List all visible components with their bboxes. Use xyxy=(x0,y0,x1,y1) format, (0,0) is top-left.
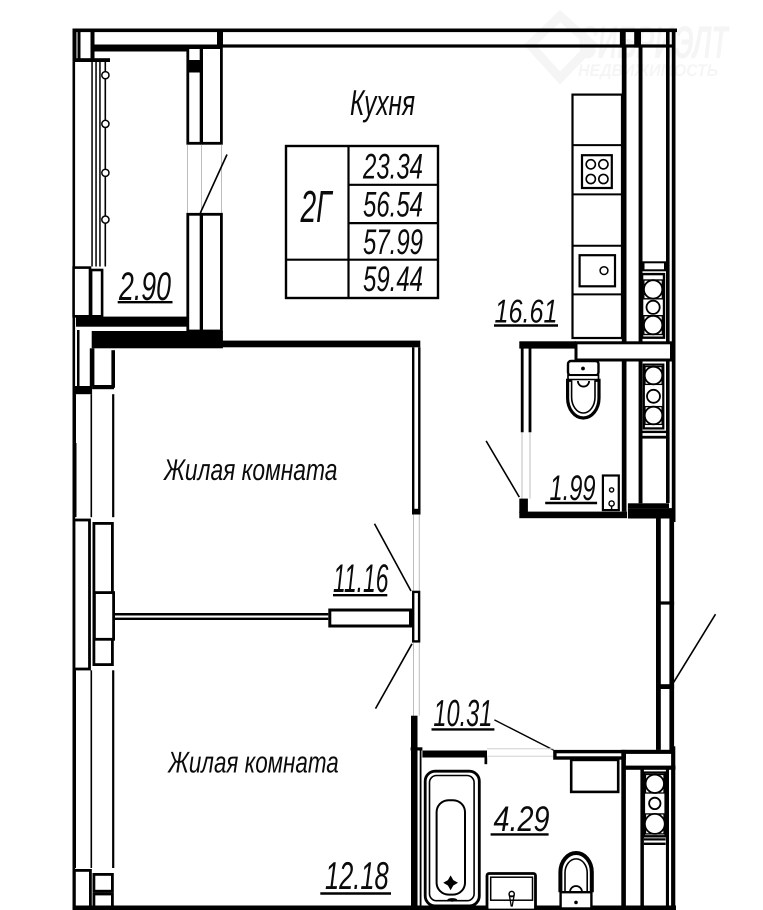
svg-text:Кухня: Кухня xyxy=(350,82,415,123)
svg-text:10.31: 10.31 xyxy=(433,692,492,734)
svg-text:НЕДВИЖИМОСТЬ: НЕДВИЖИМОСТЬ xyxy=(578,61,718,80)
svg-text:12.18: 12.18 xyxy=(325,855,389,898)
svg-text:56.54: 56.54 xyxy=(363,185,423,225)
svg-text:Жилая комната: Жилая комната xyxy=(162,454,337,487)
svg-text:16.61: 16.61 xyxy=(495,293,558,330)
svg-text:4.29: 4.29 xyxy=(494,799,550,839)
svg-text:2Г: 2Г xyxy=(300,181,334,232)
svg-text:57.99: 57.99 xyxy=(363,222,423,262)
svg-text:59.44: 59.44 xyxy=(363,259,423,299)
svg-text:23.34: 23.34 xyxy=(362,146,423,186)
svg-text:Жилая комната: Жилая комната xyxy=(167,747,339,780)
